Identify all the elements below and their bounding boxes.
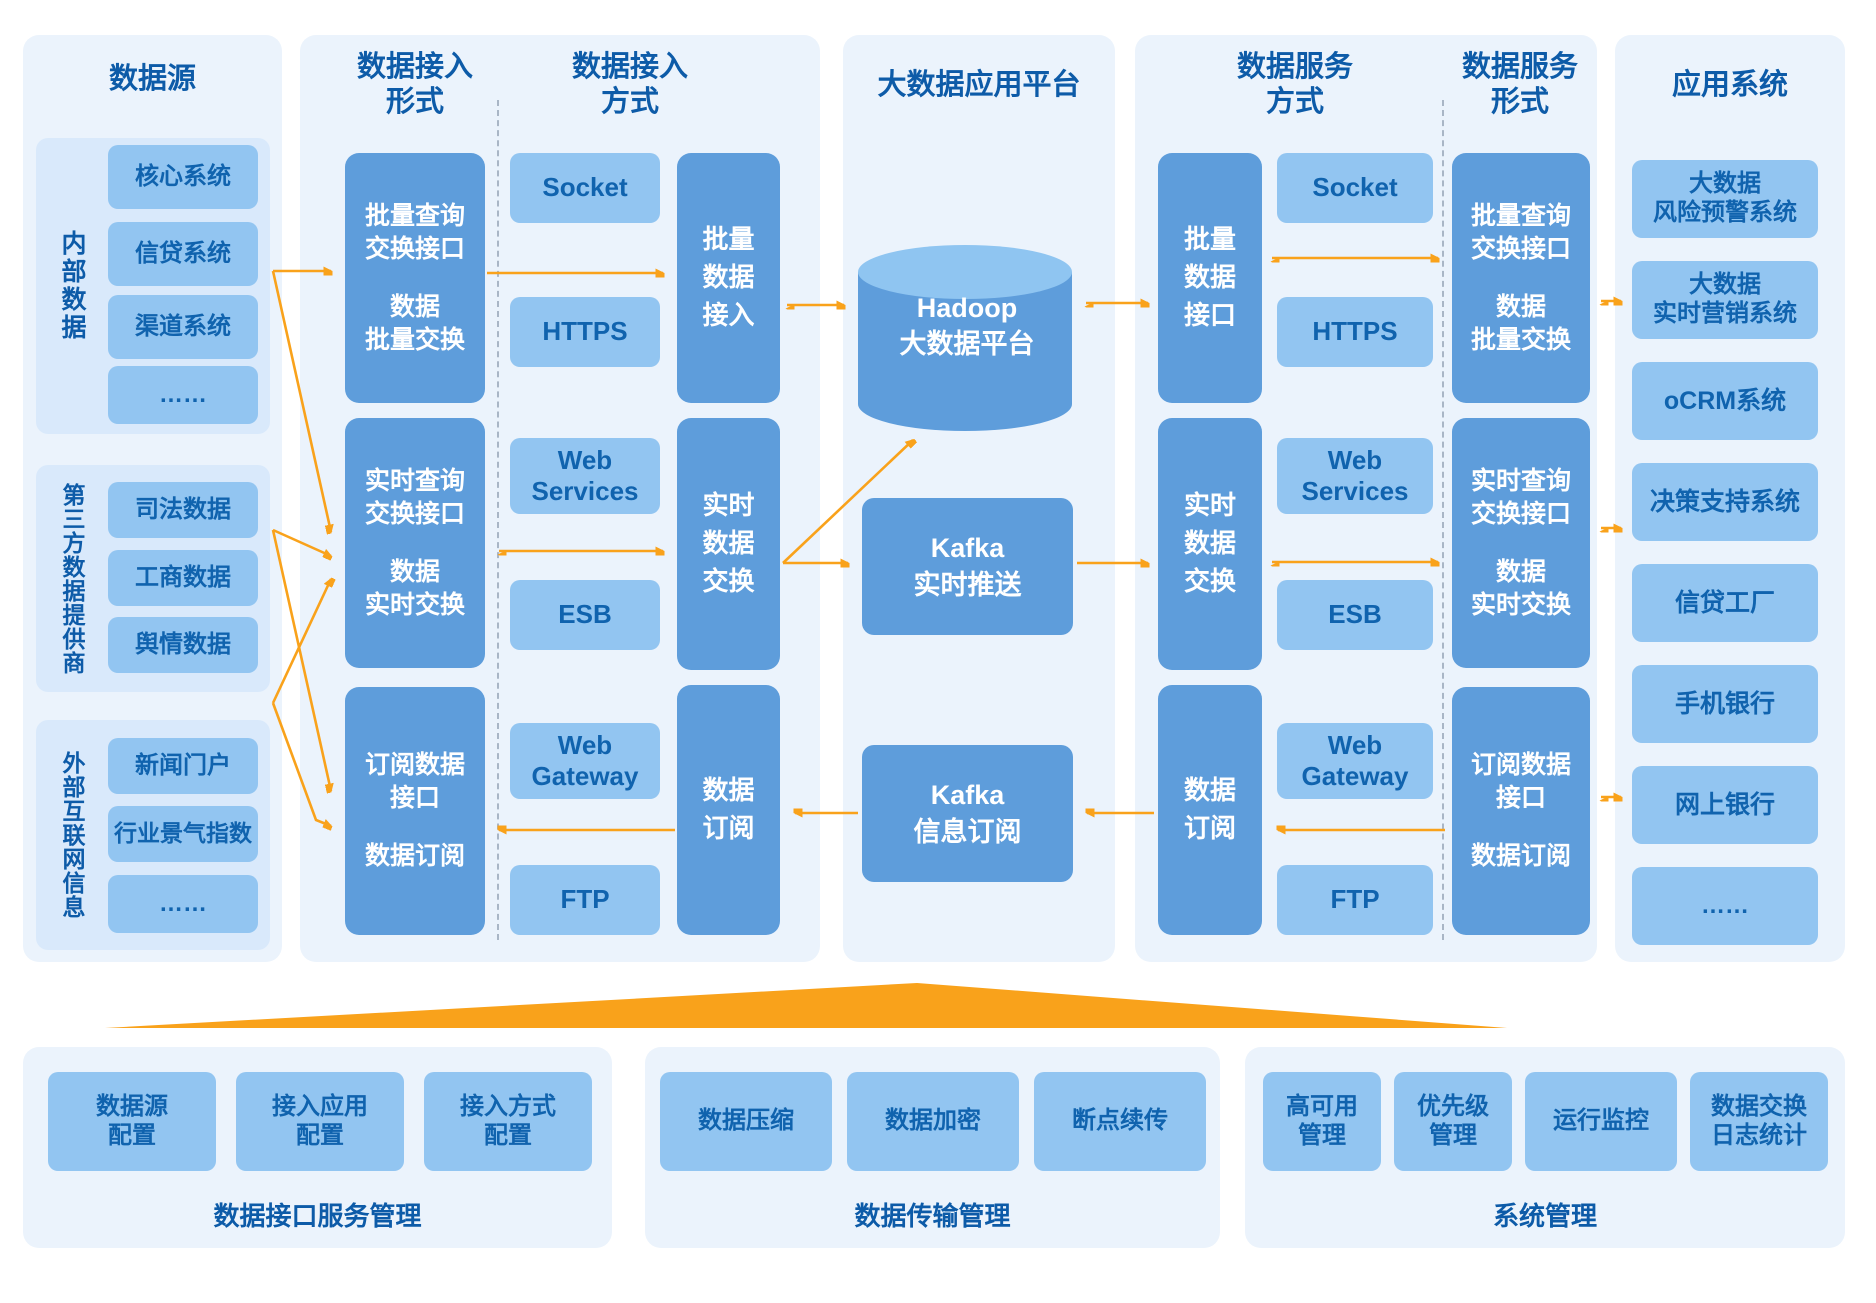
app-ellipsis: ……	[1632, 867, 1818, 945]
service-mode-esb: ESB	[1277, 580, 1433, 650]
title-service-form: 数据服务 形式	[1440, 50, 1600, 121]
ingest-form-realtime-bottom: 数据 实时交换	[365, 556, 465, 621]
bar-batch-data-interface: 批量 数据 接口	[1158, 153, 1262, 403]
mgmt-priority: 优先级 管理	[1394, 1072, 1512, 1171]
ingest-form-batch-top: 批量查询 交换接口	[365, 200, 465, 265]
node-credit-system: 信贷系统	[108, 222, 258, 286]
app-decision-support: 决策支持系统	[1632, 463, 1818, 541]
bar-batch-data-ingest: 批量 数据 接入	[677, 153, 780, 403]
service-form-realtime-top: 实时查询 交换接口	[1471, 465, 1571, 530]
service-divider	[1442, 100, 1444, 940]
ingest-divider	[497, 100, 499, 940]
cfg-access-mode: 接入方式 配置	[424, 1072, 592, 1171]
mgmt-exchange-log-stats: 数据交换 日志统计	[1690, 1072, 1828, 1171]
node-judicial-data: 司法数据	[108, 482, 258, 538]
service-form-batch-top: 批量查询 交换接口	[1471, 200, 1571, 265]
hadoop-label: Hadoop 大数据平台	[857, 290, 1077, 363]
service-mode-web-services: Web Services	[1277, 438, 1433, 514]
ingest-form-batch-bottom: 数据 批量交换	[365, 291, 465, 356]
service-form-batch-bottom: 数据 批量交换	[1471, 291, 1571, 356]
node-core-system: 核心系统	[108, 145, 258, 209]
ingest-form-batch: 批量查询 交换接口 数据 批量交换	[345, 153, 485, 403]
title-platform: 大数据应用平台	[843, 68, 1115, 103]
app-realtime-marketing: 大数据 实时营销系统	[1632, 261, 1818, 339]
mgmt-data-encryption: 数据加密	[847, 1072, 1019, 1171]
title-app-systems: 应用系统	[1615, 68, 1845, 103]
mgmt-operation-monitoring: 运行监控	[1525, 1072, 1677, 1171]
mgmt-data-compression: 数据压缩	[660, 1072, 832, 1171]
ingest-mode-socket: Socket	[510, 153, 660, 223]
group-third-party-label: 第三方数据提供商	[52, 465, 92, 692]
caption-transfer-mgmt: 数据传输管理	[645, 1196, 1220, 1233]
kafka-realtime-push: Kafka 实时推送	[862, 498, 1073, 635]
title-data-source: 数据源	[23, 62, 282, 97]
service-form-realtime: 实时查询 交换接口 数据 实时交换	[1452, 418, 1590, 668]
service-mode-ftp: FTP	[1277, 865, 1433, 935]
app-mobile-banking: 手机银行	[1632, 665, 1818, 743]
caption-interface-service-mgmt: 数据接口服务管理	[23, 1196, 612, 1233]
ingest-form-subscribe-bottom: 数据订阅	[365, 840, 465, 873]
node-external-ellipsis: ……	[108, 875, 258, 933]
base-triangle	[105, 983, 1507, 1028]
caption-system-mgmt: 系统管理	[1245, 1196, 1845, 1233]
cfg-data-source: 数据源 配置	[48, 1072, 216, 1171]
app-credit-factory: 信贷工厂	[1632, 564, 1818, 642]
service-mode-https: HTTPS	[1277, 297, 1433, 367]
bar-data-subscribe: 数据 订阅	[677, 685, 780, 935]
group-internal-data-label: 内部数据	[52, 138, 92, 434]
kafka-message-subscribe: Kafka 信息订阅	[862, 745, 1073, 882]
ingest-mode-esb: ESB	[510, 580, 660, 650]
app-ocrm: oCRM系统	[1632, 362, 1818, 440]
group-external-internet-label: 外部互联网信息	[52, 720, 92, 950]
node-public-opinion-data: 舆情数据	[108, 617, 258, 673]
architecture-diagram: 数据源 数据接入 形式 数据接入 方式 大数据应用平台 数据服务 方式 数据服务…	[0, 0, 1876, 1303]
title-service-mode: 数据服务 方式	[1215, 50, 1375, 121]
title-ingest-mode: 数据接入 方式	[550, 50, 710, 121]
mgmt-resume-transfer: 断点续传	[1034, 1072, 1206, 1171]
ingest-form-subscribe-top: 订阅数据 接口	[365, 749, 465, 814]
ingest-mode-https: HTTPS	[510, 297, 660, 367]
node-business-registry-data: 工商数据	[108, 550, 258, 606]
service-form-subscribe-bottom: 数据订阅	[1471, 840, 1571, 873]
node-industry-index: 行业景气指数	[108, 806, 258, 862]
node-internal-ellipsis: ……	[108, 366, 258, 424]
cfg-access-app: 接入应用 配置	[236, 1072, 404, 1171]
service-form-batch: 批量查询 交换接口 数据 批量交换	[1452, 153, 1590, 403]
app-risk-warning: 大数据 风险预警系统	[1632, 160, 1818, 238]
service-form-subscribe: 订阅数据 接口 数据订阅	[1452, 687, 1590, 935]
title-ingest-form: 数据接入 形式	[335, 50, 495, 121]
ingest-form-subscribe: 订阅数据 接口 数据订阅	[345, 687, 485, 935]
ingest-mode-ftp: FTP	[510, 865, 660, 935]
bar-service-data-subscribe: 数据 订阅	[1158, 685, 1262, 935]
service-form-subscribe-top: 订阅数据 接口	[1471, 749, 1571, 814]
ingest-mode-web-gateway: Web Gateway	[510, 723, 660, 799]
ingest-form-realtime: 实时查询 交换接口 数据 实时交换	[345, 418, 485, 668]
app-online-banking: 网上银行	[1632, 766, 1818, 844]
service-mode-socket: Socket	[1277, 153, 1433, 223]
node-news-portal: 新闻门户	[108, 738, 258, 794]
service-form-realtime-bottom: 数据 实时交换	[1471, 556, 1571, 621]
bar-realtime-data-exchange: 实时 数据 交换	[677, 418, 780, 670]
mgmt-high-availability: 高可用 管理	[1263, 1072, 1381, 1171]
bar-service-realtime-exchange: 实时 数据 交换	[1158, 418, 1262, 670]
ingest-form-realtime-top: 实时查询 交换接口	[365, 465, 465, 530]
service-mode-web-gateway: Web Gateway	[1277, 723, 1433, 799]
node-channel-system: 渠道系统	[108, 295, 258, 359]
ingest-mode-web-services: Web Services	[510, 438, 660, 514]
